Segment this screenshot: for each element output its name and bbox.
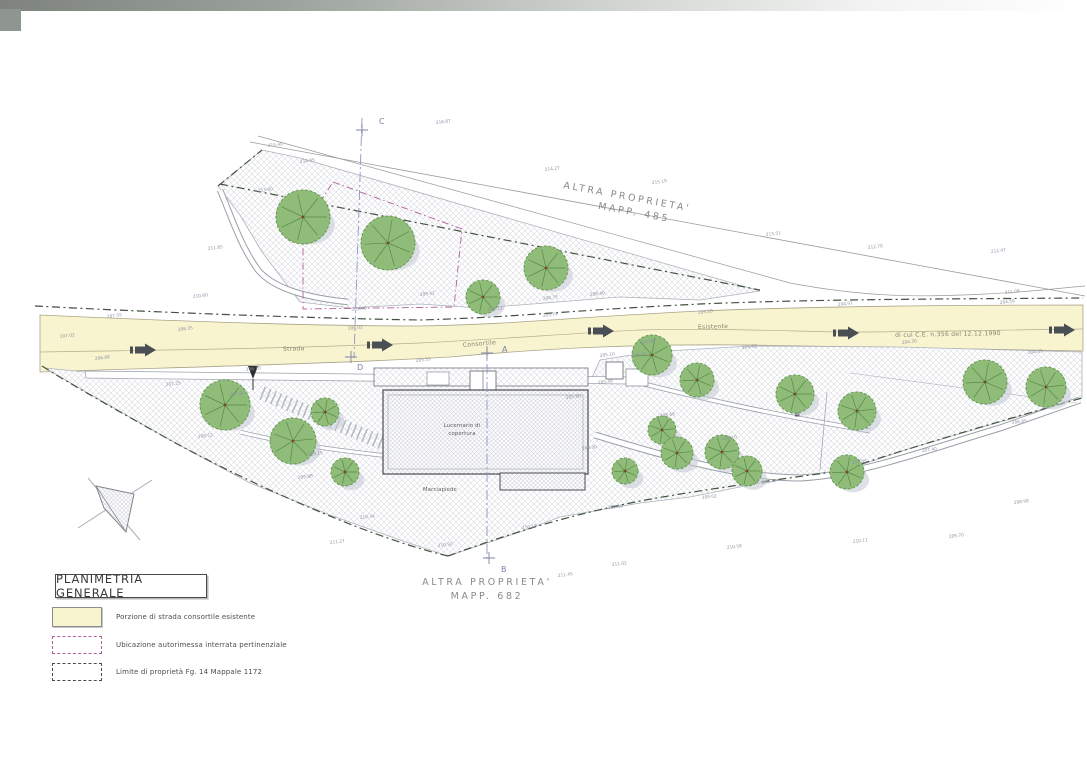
spot-elevation: 209.70 [949,532,965,540]
spot-elevation: 211.27 [330,538,346,546]
spot-elevation: 210.60 [193,292,209,300]
site-plan-sheet: 215.40216.87214.27215.19213.51212.70212.… [0,0,1087,768]
page-title: PLANIMETRIA GENERALE [56,572,206,600]
spot-elevation: 214.27 [545,165,561,173]
spot-elevation: 212.70 [868,243,884,251]
road-label-strada: Strada [283,345,305,353]
south-property-line2: MAPP. 682 [451,591,524,602]
spot-elevation: 210.11 [853,537,869,545]
spot-elevation: 206.85 [1012,418,1028,426]
building-label-line2: copertura [448,431,475,437]
section-letter-d: D [357,363,363,372]
spot-elevation: 207.40 [922,446,938,454]
spot-elevation: 213.51 [766,230,782,238]
spot-elevation: 205.74 [543,311,559,319]
spot-elevation: 211.85 [208,244,224,252]
north-arrow [78,478,152,540]
south-property-line1: ALTRA PROPRIETA' [422,577,552,588]
legend-label-garage: Ubicazione autorimessa interrata pertine… [116,641,287,649]
spot-elevation: 211.02 [612,560,628,568]
section-letter-a: A [502,345,508,354]
legend-item-boundary: Limite di proprietà Fg. 14 Mappale 1172 [52,663,262,681]
section-letter-c: C [379,117,385,126]
road-label-esistente: Esistente [698,323,729,331]
spot-elevation: 216.87 [436,118,452,126]
label-altra-proprieta-682: ALTRA PROPRIETA' MAPP. 682 [422,577,552,602]
spot-elevation: 212.47 [991,247,1007,255]
spot-elevation: 206.10 [246,365,262,373]
small-structure [606,362,623,379]
spot-elevation: 211.08 [1005,288,1021,296]
boundary-swatch [52,663,102,681]
building [374,362,623,490]
sidewalk-label: Marciapiede [423,487,457,493]
title-block: PLANIMETRIA GENERALE [55,574,207,598]
road-swatch [52,607,102,627]
spot-elevation: 211.45 [558,571,574,579]
spot-elevation: 215.19 [652,178,668,186]
legend-label-boundary: Limite di proprietà Fg. 14 Mappale 1172 [116,668,262,676]
spot-elevation: 208.98 [1014,498,1030,506]
legend-item-road: Porzione di strada consortile esistente [52,607,255,627]
legend-item-garage: Ubicazione autorimessa interrata pertine… [52,636,287,654]
spot-elevation: 210.58 [727,543,743,551]
section-letter-b: B [501,565,507,574]
garage-swatch [52,636,102,654]
building-label-line1: Lucernario di [444,423,481,429]
label-altra-proprieta-485: ALTRA PROPRIETA' MAPP. 485 [560,180,692,228]
legend-label-road: Porzione di strada consortile esistente [116,613,255,621]
